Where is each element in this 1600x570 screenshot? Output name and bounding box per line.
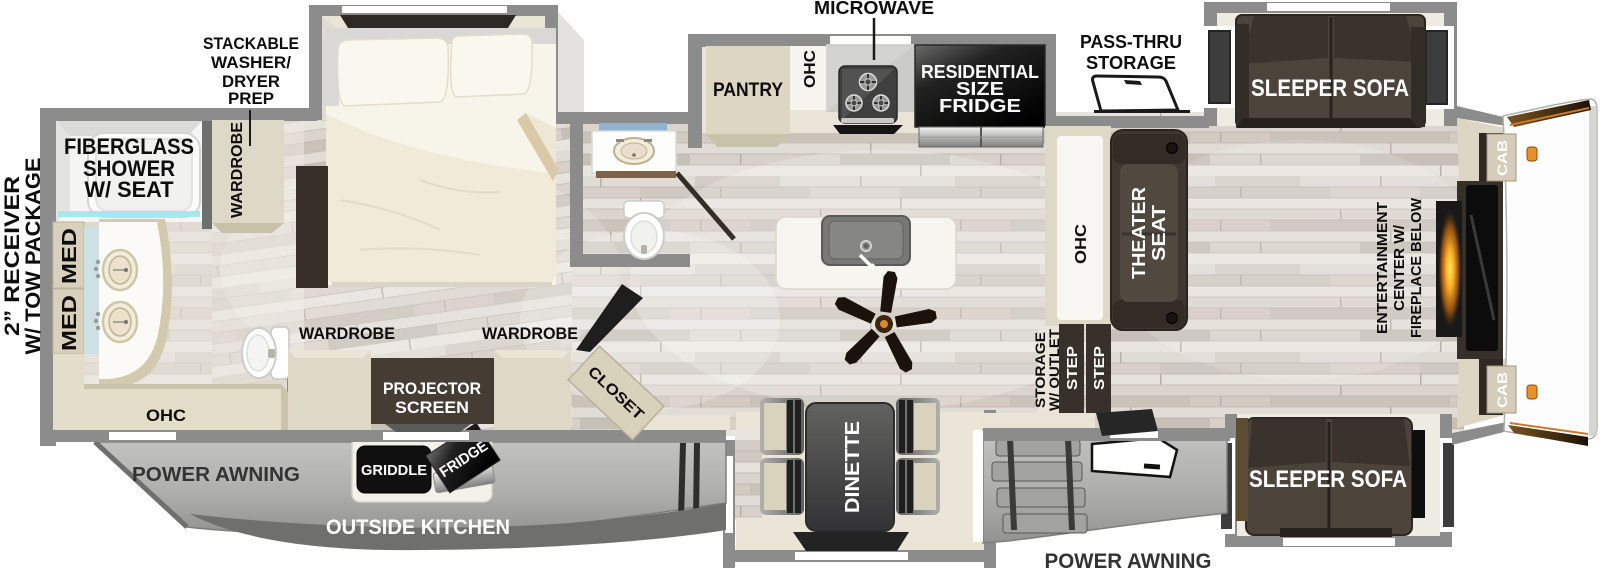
svg-text:W/ SEAT: W/ SEAT bbox=[85, 177, 175, 202]
svg-text:OHC: OHC bbox=[802, 50, 819, 88]
svg-text:MED: MED bbox=[59, 295, 81, 351]
svg-text:W/ TOW PACKAGE: W/ TOW PACKAGE bbox=[22, 158, 45, 355]
svg-text:SLEEPER SOFA: SLEEPER SOFA bbox=[1249, 466, 1407, 493]
svg-text:SCREEN: SCREEN bbox=[395, 398, 469, 417]
svg-text:STEP: STEP bbox=[1065, 346, 1081, 390]
svg-text:CENTER W/: CENTER W/ bbox=[1391, 224, 1408, 311]
svg-text:STORAGE: STORAGE bbox=[1086, 53, 1176, 73]
svg-text:WARDROBE: WARDROBE bbox=[229, 122, 246, 218]
svg-text:SLEEPER SOFA: SLEEPER SOFA bbox=[1251, 75, 1409, 102]
svg-text:2” RECEIVER: 2” RECEIVER bbox=[1, 176, 24, 336]
svg-text:WARDROBE: WARDROBE bbox=[482, 324, 578, 343]
svg-text:SEAT: SEAT bbox=[1149, 205, 1169, 261]
svg-text:OUTSIDE KITCHEN: OUTSIDE KITCHEN bbox=[326, 516, 510, 539]
svg-text:PANTRY: PANTRY bbox=[713, 80, 783, 101]
svg-text:MICROWAVE: MICROWAVE bbox=[814, 0, 934, 18]
svg-text:POWER AWNING: POWER AWNING bbox=[1045, 550, 1212, 570]
svg-text:STEP: STEP bbox=[1092, 346, 1108, 390]
svg-text:ENTERTAINMENT: ENTERTAINMENT bbox=[1374, 202, 1391, 334]
svg-text:PROJECTOR: PROJECTOR bbox=[383, 379, 481, 398]
svg-text:POWER AWNING: POWER AWNING bbox=[132, 464, 300, 486]
svg-text:PREP: PREP bbox=[228, 89, 274, 108]
svg-text:MED: MED bbox=[59, 228, 81, 284]
svg-text:CAB: CAB bbox=[1494, 140, 1510, 176]
svg-text:WARDROBE: WARDROBE bbox=[299, 324, 395, 343]
svg-text:THEATER: THEATER bbox=[1129, 187, 1149, 279]
svg-text:DINETTE: DINETTE bbox=[842, 421, 864, 513]
svg-text:STACKABLE: STACKABLE bbox=[203, 34, 299, 53]
svg-text:OHC: OHC bbox=[1073, 224, 1090, 264]
svg-text:OHC: OHC bbox=[146, 406, 186, 425]
svg-text:GRIDDLE: GRIDDLE bbox=[361, 462, 427, 479]
svg-text:FRIDGE: FRIDGE bbox=[939, 96, 1021, 116]
svg-text:WASHER/: WASHER/ bbox=[211, 53, 291, 72]
svg-text:FIREPLACE BELOW: FIREPLACE BELOW bbox=[1408, 197, 1425, 338]
svg-text:STORAGE: STORAGE bbox=[1033, 332, 1048, 408]
svg-text:PASS-THRU: PASS-THRU bbox=[1080, 32, 1182, 52]
svg-text:CAB: CAB bbox=[1494, 372, 1510, 408]
